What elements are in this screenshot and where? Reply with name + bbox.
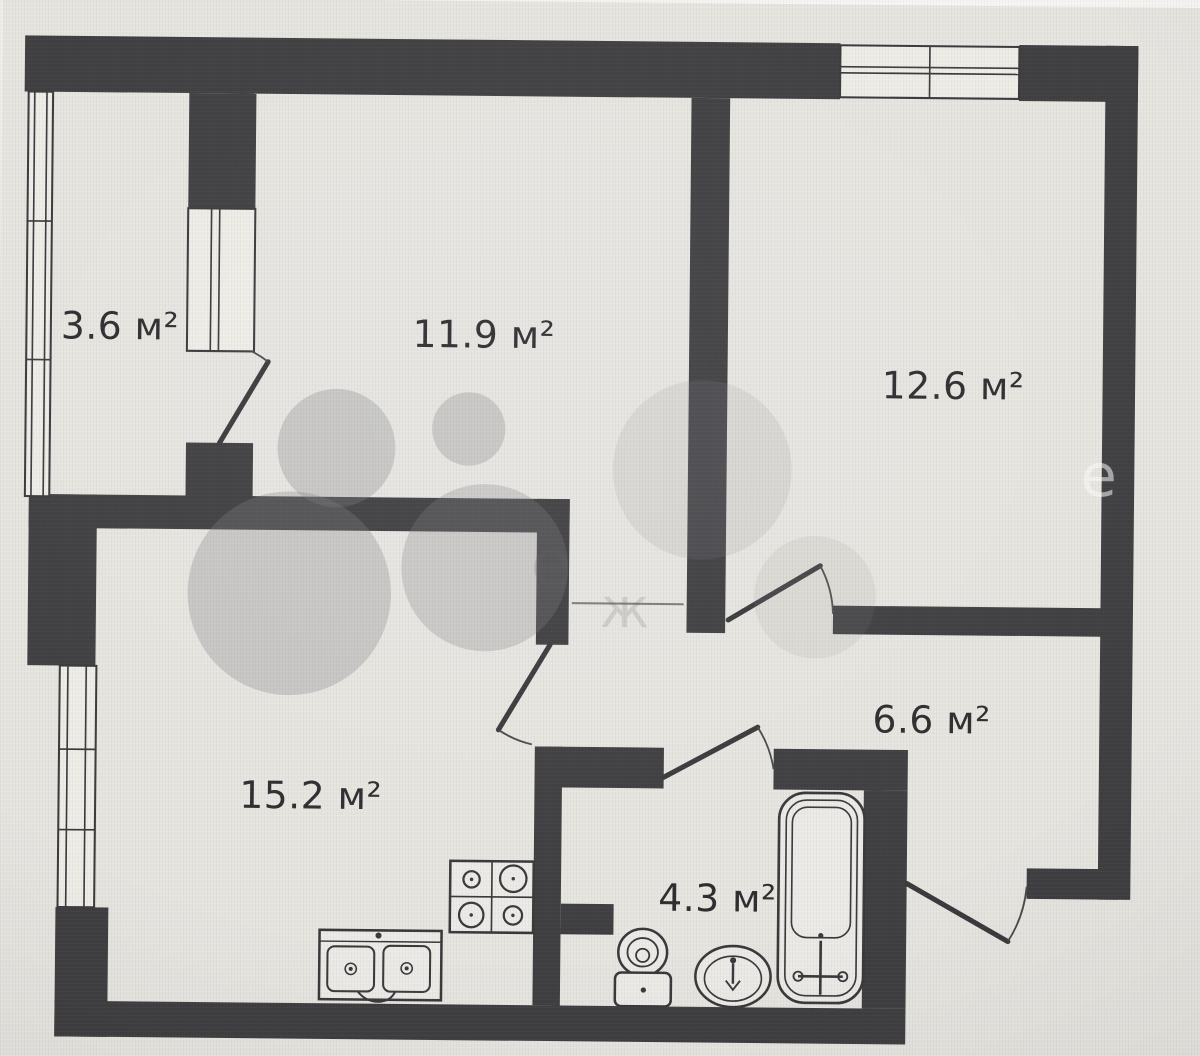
photo-tilt-wrapper: е ж е 3.6 м² 11.9 м² 12.6 м² 15.2 м² 6.6… <box>0 0 1200 1056</box>
sink-drain-dot <box>349 967 353 971</box>
wall-bathroom-top-left <box>537 746 664 788</box>
window-balcony-partition <box>187 208 255 351</box>
toilet-tank-button <box>641 987 646 992</box>
bathtub-overflow-dot <box>818 933 823 938</box>
watermark-ghost-letter: е <box>1080 441 1117 510</box>
window-balcony-glazing <box>25 91 53 496</box>
watermark-ghost-letter: е <box>530 526 571 601</box>
floor-plan-svg: е ж е 3.6 м² 11.9 м² 12.6 м² 15.2 м² 6.6… <box>0 0 1200 1056</box>
wall-hallway-bottom <box>1027 868 1119 899</box>
floor-plan-photo: е ж е 3.6 м² 11.9 м² 12.6 м² 15.2 м² 6.6… <box>0 0 1200 1056</box>
room-label-hallway: 6.6 м² <box>872 697 991 742</box>
window-frame <box>58 665 97 907</box>
window-top-right <box>840 45 1019 99</box>
window-kitchen-left <box>58 665 97 907</box>
burner-dot <box>511 914 514 917</box>
wall-bathroom-pilaster <box>561 904 614 935</box>
watermark-circle <box>612 379 793 560</box>
burner-dot <box>470 878 473 881</box>
kitchen-sink-icon <box>319 930 442 1002</box>
stove-grid <box>450 896 533 897</box>
room-label-kitchen-living: 15.2 м² <box>239 773 382 818</box>
sink-drain-dot <box>405 966 409 970</box>
sink-counter <box>319 930 442 1000</box>
washbasin-icon <box>695 946 771 1008</box>
room-label-bathroom: 4.3 м² <box>658 876 777 921</box>
bathtub-icon <box>777 793 864 1004</box>
watermark-circle <box>432 392 506 466</box>
wall-left-corner-block <box>27 494 97 666</box>
watermark-ghost-letter: ж <box>600 576 650 641</box>
wall-bathroom-right <box>862 790 908 1008</box>
burner-dot <box>512 877 515 880</box>
toilet-icon <box>615 929 672 1007</box>
washbasin-tap <box>730 957 736 963</box>
wall-balcony-partition-top <box>188 93 256 209</box>
window-frame <box>25 91 53 496</box>
window-frame <box>187 208 255 351</box>
wall-bathroom-top-right <box>773 749 908 791</box>
wall-balcony-partition-stub <box>185 443 253 501</box>
watermark-circle <box>753 536 876 659</box>
room-label-room-a: 11.9 м² <box>412 312 555 357</box>
watermark-circle <box>187 490 392 696</box>
room-label-balcony: 3.6 м² <box>61 303 180 348</box>
bathtub-drain-stem <box>820 941 821 995</box>
toilet-bowl <box>618 929 667 976</box>
room-label-room-b: 12.6 м² <box>882 363 1025 408</box>
sink-tap <box>375 932 381 938</box>
watermark-circle <box>277 388 396 507</box>
burner-dot <box>469 913 472 916</box>
stove-icon <box>450 861 534 933</box>
wall-top-left-segment <box>25 35 841 99</box>
